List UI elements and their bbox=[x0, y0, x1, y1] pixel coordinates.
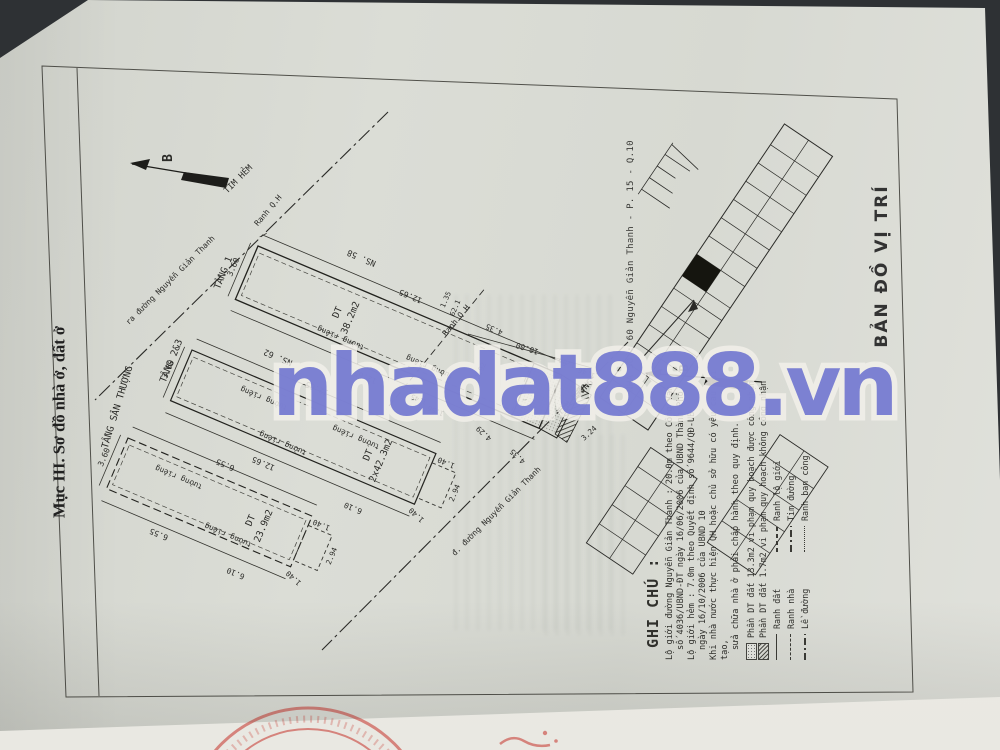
roof-area-dt: DT bbox=[244, 513, 259, 528]
floor23-name: TẦNG 2&3 bbox=[157, 337, 185, 384]
wall-label: tường riêng bbox=[258, 429, 308, 457]
note-line: sửa chữa nhà ở phải chấp hành theo quy đ… bbox=[731, 368, 742, 660]
alley-direction-label: ra đường Nguyễn Giản Thanh bbox=[124, 234, 217, 327]
dim-146: 1.46 bbox=[577, 365, 597, 380]
dim-324: 3.24 bbox=[579, 423, 599, 442]
dim-655-bottom: 6.55 bbox=[148, 526, 169, 542]
planning-boundary-rear: Ranh Q.H bbox=[253, 193, 284, 228]
legend-label: Ranh ban công bbox=[800, 455, 810, 521]
legend-swatches: Phần DT đất 13.3m2 vi phạm quy hoạch đượ… bbox=[745, 368, 769, 660]
dim-655-top: 6.55 bbox=[215, 457, 236, 473]
legend-row: Ranh đất bbox=[771, 552, 782, 660]
dim-435b: 4.35 bbox=[508, 447, 527, 466]
notes-block: GHI CHÚ : Lộ giới đường Nguyễn Giản Than… bbox=[644, 368, 830, 660]
road-centerline-sample bbox=[790, 526, 791, 552]
road-boundary-line-sample bbox=[776, 526, 777, 552]
legend-label: Ranh nhà bbox=[786, 589, 796, 629]
balcony-boundary-line-sample bbox=[804, 526, 805, 552]
note-line: số 4036/UBND-ĐT ngày 16/06/2006 của UBND… bbox=[676, 368, 687, 660]
red-stamp bbox=[186, 708, 558, 750]
dim-1000: 10.00 bbox=[514, 340, 539, 356]
note-line: ngày 16/10/2006 của UBND 10 bbox=[698, 368, 709, 660]
legend-label: Phần DT đất 1.7m2 vi phạm quy hoạch khôn… bbox=[757, 381, 769, 638]
dim-140-top: 1.40 bbox=[436, 455, 456, 470]
wall-label: tường riêng bbox=[239, 384, 289, 412]
legend-row: Ranh nhà bbox=[785, 552, 796, 660]
neighbor-left-label: NS. 58 bbox=[345, 248, 377, 269]
roof-area-value: 23.9m2 bbox=[252, 508, 276, 544]
north-arrow-plan: B bbox=[130, 154, 229, 188]
section-title: Mục III. Sơ đồ nhà ở, đất ở bbox=[47, 325, 73, 520]
dim-140-bottom: 1.40 bbox=[407, 506, 426, 525]
legend-label: Ranh lộ giới bbox=[772, 460, 782, 521]
dim-429: 4.29 bbox=[474, 424, 493, 443]
recognized-area-swatch bbox=[746, 643, 757, 660]
house-boundary-line-sample bbox=[790, 634, 791, 660]
dim-149: 1.49 bbox=[557, 355, 577, 370]
wall-label: tường riêng bbox=[331, 424, 381, 452]
legend-row: Phần DT đất 13.3m2 vi phạm quy hoạch đượ… bbox=[745, 368, 757, 660]
unrecognized-area-swatch bbox=[758, 643, 769, 660]
dim-294: 2.94 bbox=[324, 545, 339, 565]
legend-row: Tim đường bbox=[785, 455, 796, 552]
roof-name: TẦNG SÂN THƯỢNG bbox=[99, 364, 136, 450]
location-map-address: NHÀ SỐ : 60 Nguyễn Giản Thanh - P. 15 - … bbox=[624, 160, 638, 372]
floor1-plan: 12.65 NS. 58 12.65 NS. 62 3.60 tường riê… bbox=[201, 194, 631, 488]
legend-row: Ranh ban công bbox=[799, 455, 810, 552]
subject-parcel bbox=[682, 254, 721, 292]
curb-line-sample bbox=[804, 634, 805, 660]
dim-156: 1.56 bbox=[427, 404, 446, 418]
note-line: Lộ giới đường Nguyễn Giản Thanh : 20.0m … bbox=[665, 368, 676, 660]
note-line: Lộ giới hẻm : 7.0m theo Quyết định số 96… bbox=[687, 368, 698, 660]
legend-row: Ranh lộ giới bbox=[771, 455, 782, 552]
legend-label: Phần DT đất 13.3m2 vi phạm quy hoạch đượ… bbox=[745, 381, 757, 638]
dim-length-top: 12.65 bbox=[304, 379, 330, 397]
photo-scene: B TIM HẺM ra đường Nguyễn Giản Thanh TIM… bbox=[0, 0, 1000, 750]
legend-label: Tim đường bbox=[786, 476, 796, 521]
legend-label: Ranh đất bbox=[772, 589, 782, 629]
location-map-title: BẢN ĐỒ VỊ TRÍ bbox=[870, 191, 894, 341]
dim-292: 2.92 bbox=[473, 361, 488, 381]
dim-610: 6.10 bbox=[225, 565, 246, 581]
floor1-area-dt: DT bbox=[331, 305, 346, 320]
wall-label: tường riêng bbox=[154, 463, 204, 491]
land-boundary-line-sample bbox=[776, 634, 777, 660]
roof-terrace-plan: 6.55 6.55 6.10 3.60 tường riêng tường ri… bbox=[77, 414, 355, 611]
floor1-area-value: 38.2m2 bbox=[339, 300, 363, 336]
dim-610: 6.10 bbox=[342, 500, 363, 516]
map-detail-block bbox=[638, 143, 703, 215]
street-direction-label: đ. đường Nguyễn Giản Thanh bbox=[450, 465, 543, 558]
dim-294: 2.94 bbox=[447, 482, 462, 502]
wall-label: tường riêng bbox=[404, 353, 454, 381]
neighbor-right-label: NS. 62 bbox=[262, 347, 294, 368]
legend-label: Lề đường bbox=[800, 589, 810, 629]
dim-length-top: 12.65 bbox=[398, 287, 424, 305]
legend-row: Phần DT đất 1.7m2 vi phạm quy hoạch khôn… bbox=[757, 368, 769, 660]
alley-centerline: TIM HẺM ra đường Nguyễn Giản Thanh bbox=[95, 112, 388, 400]
dim-140-bottom: 1.40 bbox=[284, 569, 303, 588]
notes-heading: GHI CHÚ : bbox=[644, 368, 662, 648]
survey-drawing: B TIM HẺM ra đường Nguyễn Giản Thanh TIM… bbox=[0, 0, 1000, 750]
dim-length-bottom: 12.65 bbox=[250, 454, 276, 472]
legend-line-styles: Ranh đất Ranh nhà Lề đường Ranh lộ giới bbox=[771, 368, 810, 660]
dim-145: 1.45 bbox=[410, 392, 429, 406]
dim-length-bottom: 12.65 bbox=[352, 368, 378, 386]
legend-row: Lề đường bbox=[799, 552, 810, 660]
north-label: B bbox=[161, 154, 176, 162]
dim-435a: 4.35 bbox=[484, 322, 504, 337]
dim-140-top: 1.40 bbox=[311, 517, 331, 532]
note-line: Khi nhà nước thực hiện QH hoặc chủ sở hữ… bbox=[709, 368, 731, 660]
